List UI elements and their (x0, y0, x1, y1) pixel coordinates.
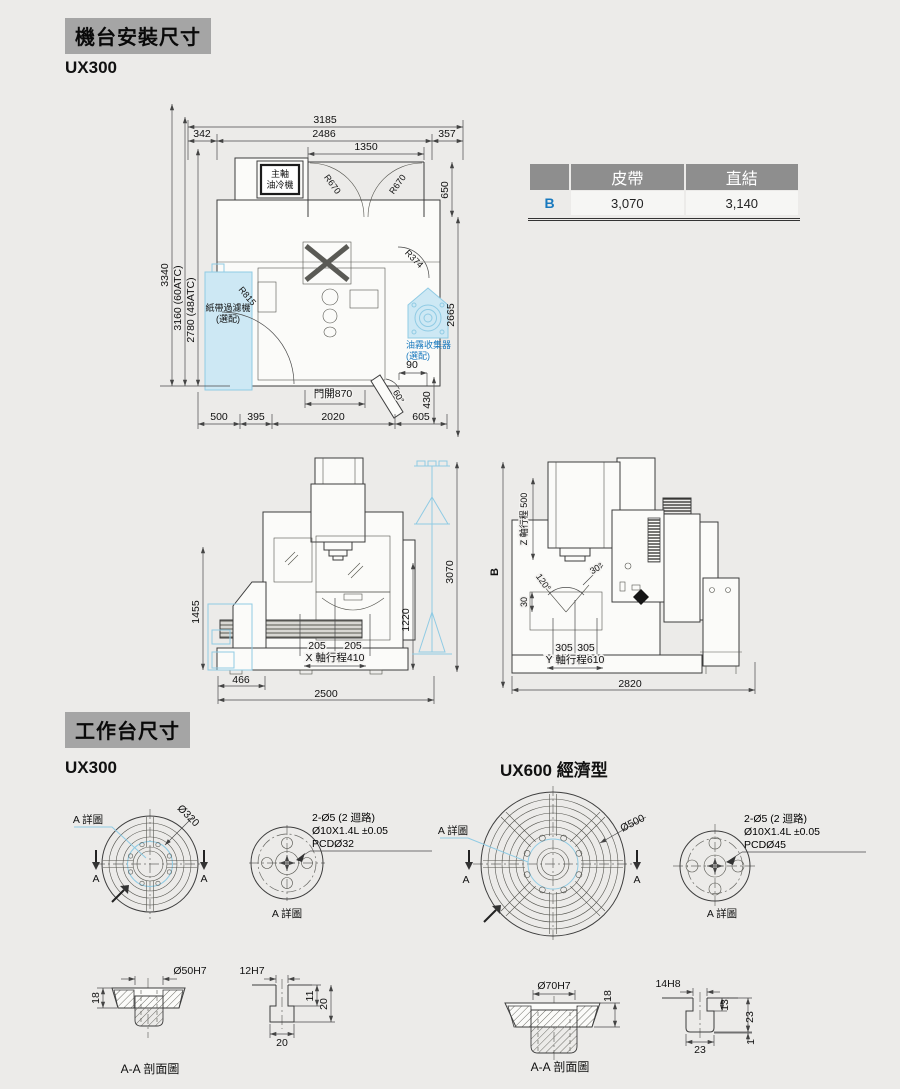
dim-2665: 2665 (445, 303, 457, 327)
dim-slot-20-right: 20 (318, 998, 330, 1010)
side-cart (700, 578, 742, 674)
dim-2780-48atc: 2780 (48ATC) (185, 277, 197, 342)
ux600-note-pin-spec: Ø10X1.4L ±0.05 (744, 826, 820, 838)
dim-500: 500 (210, 411, 228, 423)
dim-slot-1: 1 (745, 1039, 757, 1045)
spec-table-row-b: B 3,070 3,140 (530, 191, 798, 215)
dim-2820: 2820 (618, 678, 642, 690)
dim-3340: 3340 (159, 263, 171, 287)
oil-cooler-label-1: 主軸 (271, 168, 289, 179)
dim-3160-60atc: 3160 (60ATC) (172, 265, 184, 330)
ux300-tslot-detail: 12H7 11 20 20 (239, 965, 335, 1049)
dim-395: 395 (247, 411, 265, 423)
dim-1455: 1455 (190, 600, 202, 624)
catalog-page: 機台安裝尺寸 UX300 皮帶 直結 B 3,070 3,140 (0, 0, 900, 1089)
ux300-section-caption: A-A 剖面圖 (121, 1062, 180, 1076)
ux600-section-a-right: A (633, 874, 640, 886)
label-y-axis-stroke: Y 軸行程610 (546, 653, 605, 666)
ux300-section-a-right: A (200, 873, 207, 885)
dim-605: 605 (412, 411, 430, 423)
oil-cooler-label-2: 油冷機 (266, 179, 293, 190)
dim-slot-20-bottom: 20 (276, 1037, 288, 1049)
dim-y-305-right: 305 (577, 642, 595, 654)
hoist-symbol: 3070 (412, 461, 457, 672)
paper-filter-label-1: 紙帶過濾機 (205, 302, 250, 313)
ux300-section-a-left: A (92, 873, 99, 885)
dim-slot-23-bottom: 23 (694, 1044, 706, 1056)
model-label-ux300-install: UX300 (65, 58, 117, 78)
ux300-note-coolant-ports: 2-Ø5 (2 迴路) (312, 811, 375, 824)
dim-ux300-depth-18: 18 (90, 992, 102, 1004)
dim-342: 342 (193, 128, 211, 140)
ux300-detail-a: 2-Ø5 (2 迴路) Ø10X1.4L ±0.05 PCDØ32 A 詳圖 (249, 811, 432, 920)
ux300-section-aa: Ø50H7 18 A-A 剖面圖 (90, 965, 207, 1076)
dim-2500: 2500 (314, 688, 338, 700)
dim-3185: 3185 (313, 114, 337, 126)
ux600-tslot-detail: 14H8 13 23 1 23 (655, 978, 757, 1056)
dim-430: 430 (421, 391, 433, 409)
dim-2486: 2486 (312, 128, 336, 140)
dim-dia-500: Ø500 (618, 812, 646, 834)
ux300-table-plan: Ø320 A 詳圖 A A (73, 803, 208, 919)
ux600-detail-callout: A 詳圖 (438, 824, 468, 837)
dim-650: 650 (439, 181, 451, 199)
dim-r670-left: R670 (322, 173, 343, 196)
paper-filter-label-2: (選配) (216, 314, 240, 324)
dim-slot-23-right: 23 (744, 1011, 756, 1023)
spec-belt-value: 3,070 (571, 191, 683, 215)
dim-466: 466 (232, 674, 250, 686)
dim-r670-right: R670 (387, 173, 408, 196)
ux600-section-a-left: A (462, 874, 469, 886)
top-view-drawing: 主軸 油冷機 紙帶過濾機 (選配) 油霧收集器 (選配) (140, 100, 510, 450)
front-side-view-drawing: 1455 466 2500 205 205 X 軸行程410 1220 (190, 450, 765, 712)
model-label-ux600-table: UX600 經濟型 (500, 756, 608, 781)
spec-table: 皮帶 直結 B 3,070 3,140 (528, 163, 800, 221)
ux300-detail-caption: A 詳圖 (272, 907, 302, 920)
dim-357: 357 (438, 128, 456, 140)
dim-1220: 1220 (400, 608, 412, 632)
dim-slot-12h7: 12H7 (239, 965, 264, 977)
ux300-detail-callout: A 詳圖 (73, 813, 103, 826)
dim-30: 30 (519, 597, 529, 607)
ux600-section-aa: Ø70H7 18 A-A 剖面圖 (505, 980, 620, 1074)
paper-filter-optional: 紙帶過濾機 (選配) (205, 264, 252, 390)
spec-direct-value: 3,140 (686, 191, 798, 215)
dim-y-305-left: 305 (555, 642, 573, 654)
dim-slot-11: 11 (304, 990, 316, 1001)
side-view-machine: B 120° 30° (489, 458, 742, 688)
dim-90: 90 (406, 359, 418, 371)
label-x-axis-stroke: X 軸行程410 (306, 651, 365, 664)
dim-door-open-870: 門開870 (314, 388, 353, 400)
ux300-note-pin-spec: Ø10X1.4L ±0.05 (312, 825, 388, 837)
dim-b-height: B (489, 568, 501, 576)
ux600-detail-caption: A 詳圖 (707, 907, 737, 920)
dim-slot-13: 13 (719, 999, 731, 1011)
spec-header-direct: 直結 (686, 164, 798, 190)
model-label-ux300-table: UX300 (65, 758, 117, 778)
ux600-note-pcd: PCDØ45 (744, 839, 786, 851)
mist-collector-label-1: 油霧收集器 (406, 339, 451, 350)
spec-header-empty (530, 164, 569, 190)
ux600-table-plan: Ø500 A 詳圖 A A (438, 786, 647, 942)
spec-header-belt: 皮帶 (571, 164, 683, 190)
dim-slot-14h8: 14H8 (655, 978, 680, 990)
label-z-axis-stroke: Z 軸行程 500 (518, 493, 529, 546)
ux300-note-pcd: PCDØ32 (312, 838, 354, 850)
spec-table-header-row: 皮帶 直結 (530, 164, 798, 190)
dim-x-205-left: 205 (308, 640, 326, 652)
oil-cooler-unit: 主軸 油冷機 (257, 161, 303, 198)
spec-row-label: B (530, 191, 569, 215)
dim-2020: 2020 (321, 411, 345, 423)
dim-hoist-3070: 3070 (444, 560, 456, 584)
section-title-install: 機台安裝尺寸 (65, 18, 211, 54)
dim-x-205-right: 205 (344, 640, 362, 652)
ux600-section-caption: A-A 剖面圖 (531, 1060, 590, 1074)
vent-grille (663, 498, 691, 514)
dim-ux600-depth-18: 18 (602, 990, 614, 1002)
dim-bore-70h7: Ø70H7 (537, 980, 570, 992)
worktable-drawings: Ø320 A 詳圖 A A 2-Ø5 (60, 790, 880, 1089)
dim-bore-50h7: Ø50H7 (173, 965, 206, 977)
ux600-detail-a: 2-Ø5 (2 迴路) Ø10X1.4L ±0.05 PCDØ45 A 詳圖 (673, 812, 866, 920)
section-title-worktable: 工作台尺寸 (65, 712, 190, 748)
dim-1350: 1350 (354, 141, 378, 153)
ux600-note-coolant-ports: 2-Ø5 (2 迴路) (744, 812, 807, 825)
